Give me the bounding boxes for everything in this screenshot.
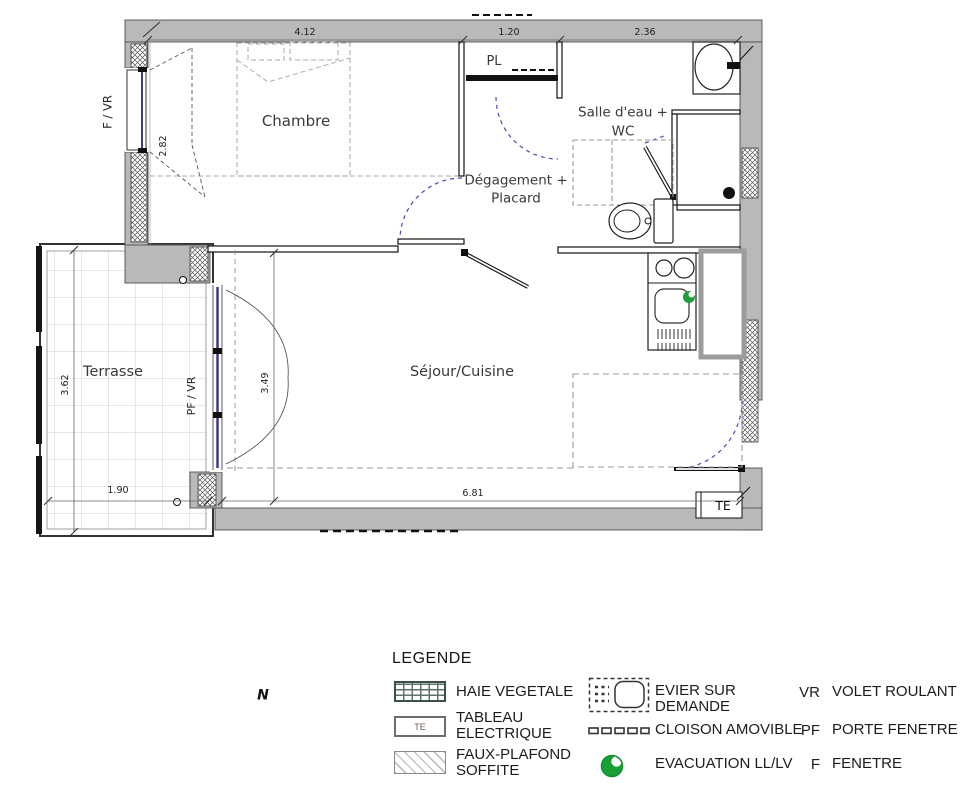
room-label-salle-eau-1: Salle d'eau + xyxy=(578,106,668,121)
legend-haie-label: HAIE VEGETALE xyxy=(456,684,573,700)
hedge-edge xyxy=(36,346,42,444)
duct-dot xyxy=(723,187,735,199)
room-label-sejour-cuisine: Séjour/Cuisine xyxy=(410,365,514,381)
legend-evacuation-label: EVACUATION LL/LV xyxy=(655,756,793,772)
abbr-pf-label: PORTE FENETRE xyxy=(832,722,958,738)
dim-terrasse-depth: 3.62 xyxy=(61,374,71,395)
kitchen-block xyxy=(648,251,744,357)
window-f-vr-label: F / VR xyxy=(102,95,115,129)
tall-unit xyxy=(701,251,744,357)
room-label-salle-eau-2: WC xyxy=(612,125,635,140)
floor-plan-page: Chambre Terrasse Séjour/Cuisine Dégageme… xyxy=(0,0,968,800)
room-label-degagement-1: Dégagement + xyxy=(464,174,567,189)
te-label: TE xyxy=(715,499,731,513)
chambre-door-arc xyxy=(400,178,462,240)
north-label: N xyxy=(257,688,269,703)
room-label-terrasse: Terrasse xyxy=(83,365,143,381)
entry-door-arc xyxy=(674,401,742,469)
legend-cloison-label: CLOISON AMOVIBLE xyxy=(655,722,803,738)
room-label-degagement-2: Placard xyxy=(491,192,541,207)
hedge-edge xyxy=(36,456,42,534)
floor-plan-drawing xyxy=(0,0,968,625)
dim-terrasse-width: 1.90 xyxy=(107,486,128,496)
abbr-f-label: FENETRE xyxy=(832,756,902,772)
hedge-edge xyxy=(36,246,42,332)
abbr-pf: PF xyxy=(788,722,820,739)
dim-chambre-width: 4.12 xyxy=(294,28,315,38)
abbr-vr: VR xyxy=(788,684,820,701)
closet-sliding-door xyxy=(466,75,558,81)
dim-chambre-depth: 2.82 xyxy=(159,135,169,156)
dim-sejour-width: 6.81 xyxy=(462,489,483,499)
legend-evier-label: EVIER SUR DEMANDE xyxy=(655,683,736,715)
dim-sejour-depth: 3.49 xyxy=(261,372,271,393)
room-label-chambre: Chambre xyxy=(262,113,330,130)
haie-vegetale-icon xyxy=(394,681,446,702)
dim-282-construction xyxy=(150,48,205,197)
abbr-f: F xyxy=(788,756,820,773)
legend-faux-plafond-label: FAUX-PLAFOND SOFFITE xyxy=(456,747,571,779)
degagement-door-arc xyxy=(496,97,558,159)
tableau-electrique-icon: TE xyxy=(394,716,446,737)
faux-plafond-icon xyxy=(394,751,446,774)
abbr-vr-label: VOLET ROULANT xyxy=(832,684,957,700)
sejour-soffit-dashed xyxy=(227,374,742,468)
toilet xyxy=(609,199,673,243)
bed-dashed-outline xyxy=(150,42,459,176)
legend-tableau-label: TABLEAU ELECTRIQUE xyxy=(456,710,552,742)
dim-salle-eau-width: 2.36 xyxy=(634,28,655,38)
window-f-vr xyxy=(125,67,148,153)
dim-placard-width: 1.20 xyxy=(498,28,519,38)
room-label-pl: PL xyxy=(486,55,501,69)
legend-title: LEGENDE xyxy=(392,650,472,668)
terrace-door-label: PF / VR xyxy=(186,377,198,416)
